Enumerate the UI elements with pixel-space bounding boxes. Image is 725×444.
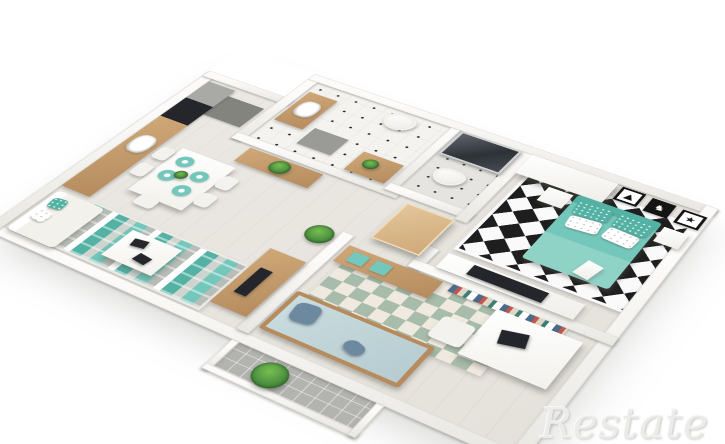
floorplan-render-canvas: ▲♞★ Restate xyxy=(0,0,725,444)
floor-plan: ▲♞★ xyxy=(0,49,719,444)
apartment-3d-scene: ▲♞★ xyxy=(0,49,719,444)
watermark: Restate xyxy=(540,399,709,444)
